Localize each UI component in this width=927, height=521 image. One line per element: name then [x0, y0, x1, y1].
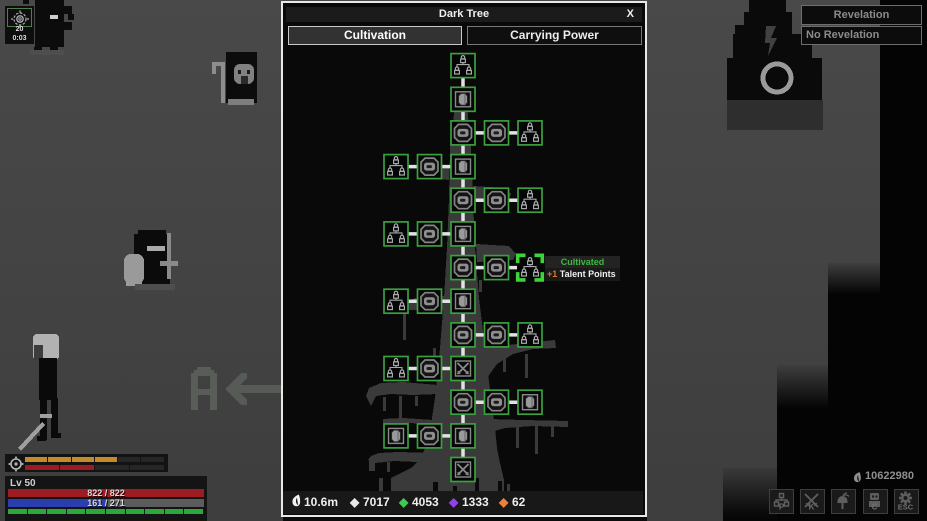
svg-text:K: K — [809, 503, 815, 511]
svg-text:ESC: ESC — [898, 503, 914, 511]
svg-text:P: P — [779, 503, 785, 511]
svg-text:C: C — [872, 503, 878, 511]
